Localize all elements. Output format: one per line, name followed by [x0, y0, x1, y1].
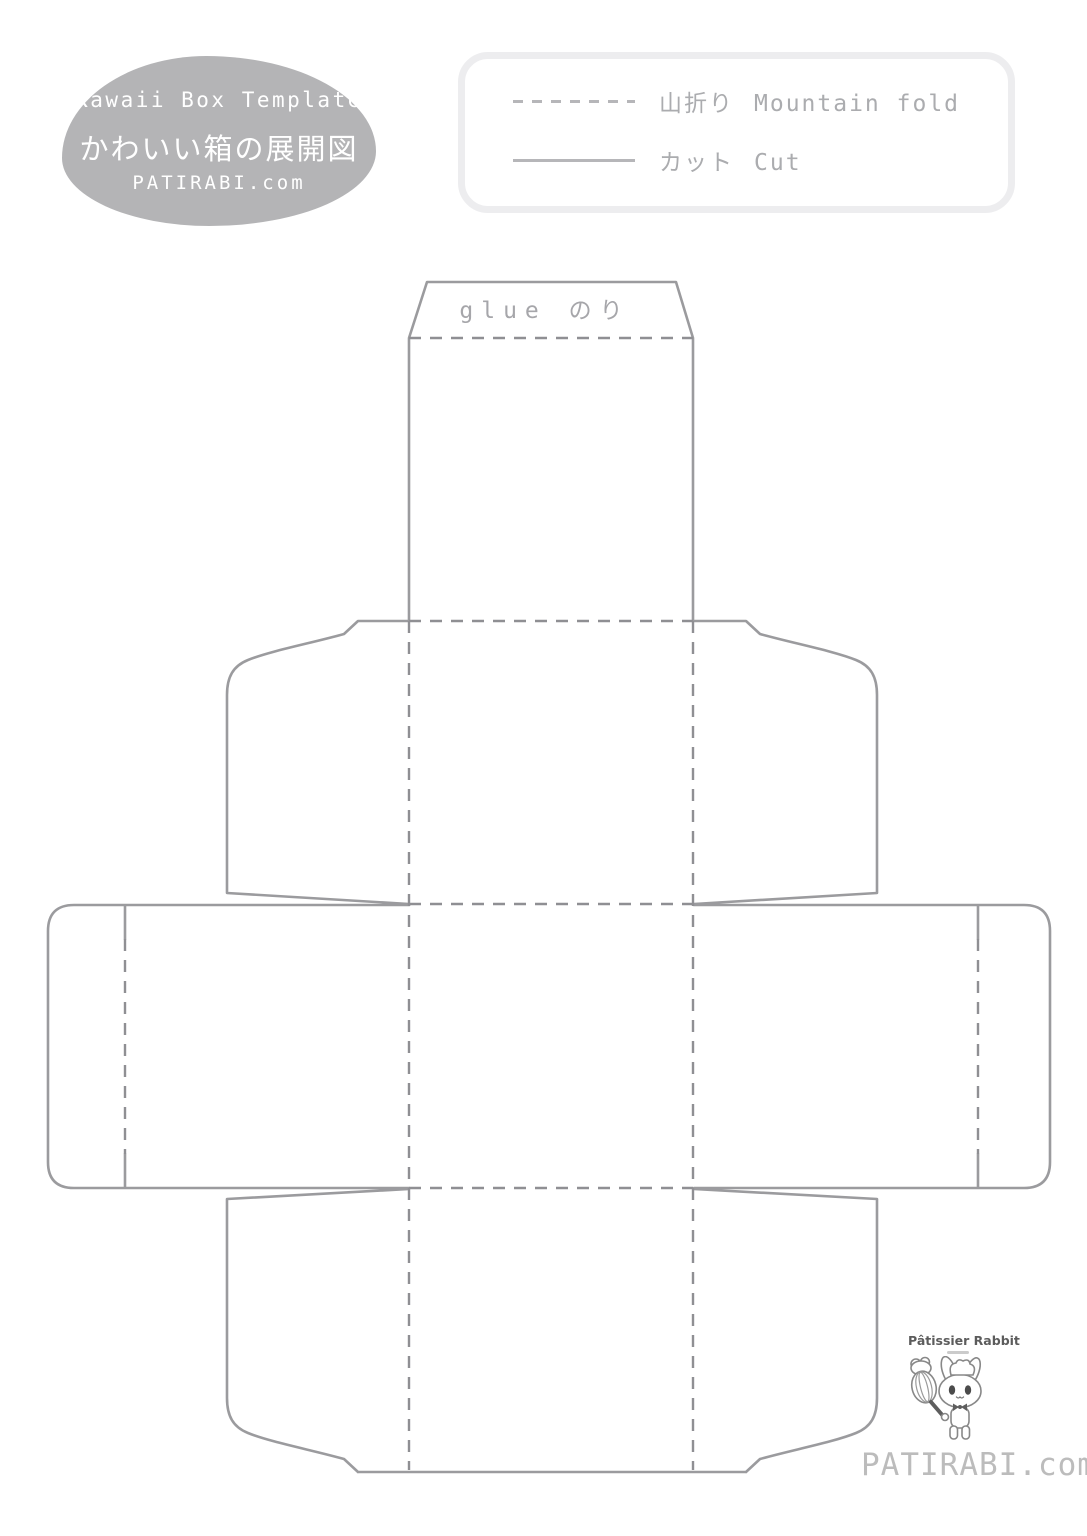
footer-site-url: PATIRABI.com	[861, 1447, 1087, 1483]
kawaii-box-template-page: Kawaii Box Template かわいい箱の展開図 PATIRABI.c…	[0, 0, 1087, 1536]
glue-label: glue のり	[459, 298, 630, 324]
patissier-rabbit-mascot	[903, 1356, 1003, 1446]
rabbit-paw	[942, 1414, 949, 1421]
rabbit-right-leg	[962, 1426, 970, 1439]
mascot-title: Pâtissier Rabbit	[908, 1333, 1008, 1348]
box-template-diagram: glue のり	[0, 0, 1087, 1536]
rabbit-left-eye	[949, 1385, 955, 1395]
mascot-subtext-smudge	[947, 1351, 969, 1354]
rabbit-left-leg	[950, 1426, 958, 1439]
rabbit-right-eye	[965, 1385, 971, 1395]
rabbit-head	[939, 1375, 981, 1408]
cut-lines	[48, 282, 1050, 1472]
rabbit-mouth	[957, 1397, 964, 1398]
